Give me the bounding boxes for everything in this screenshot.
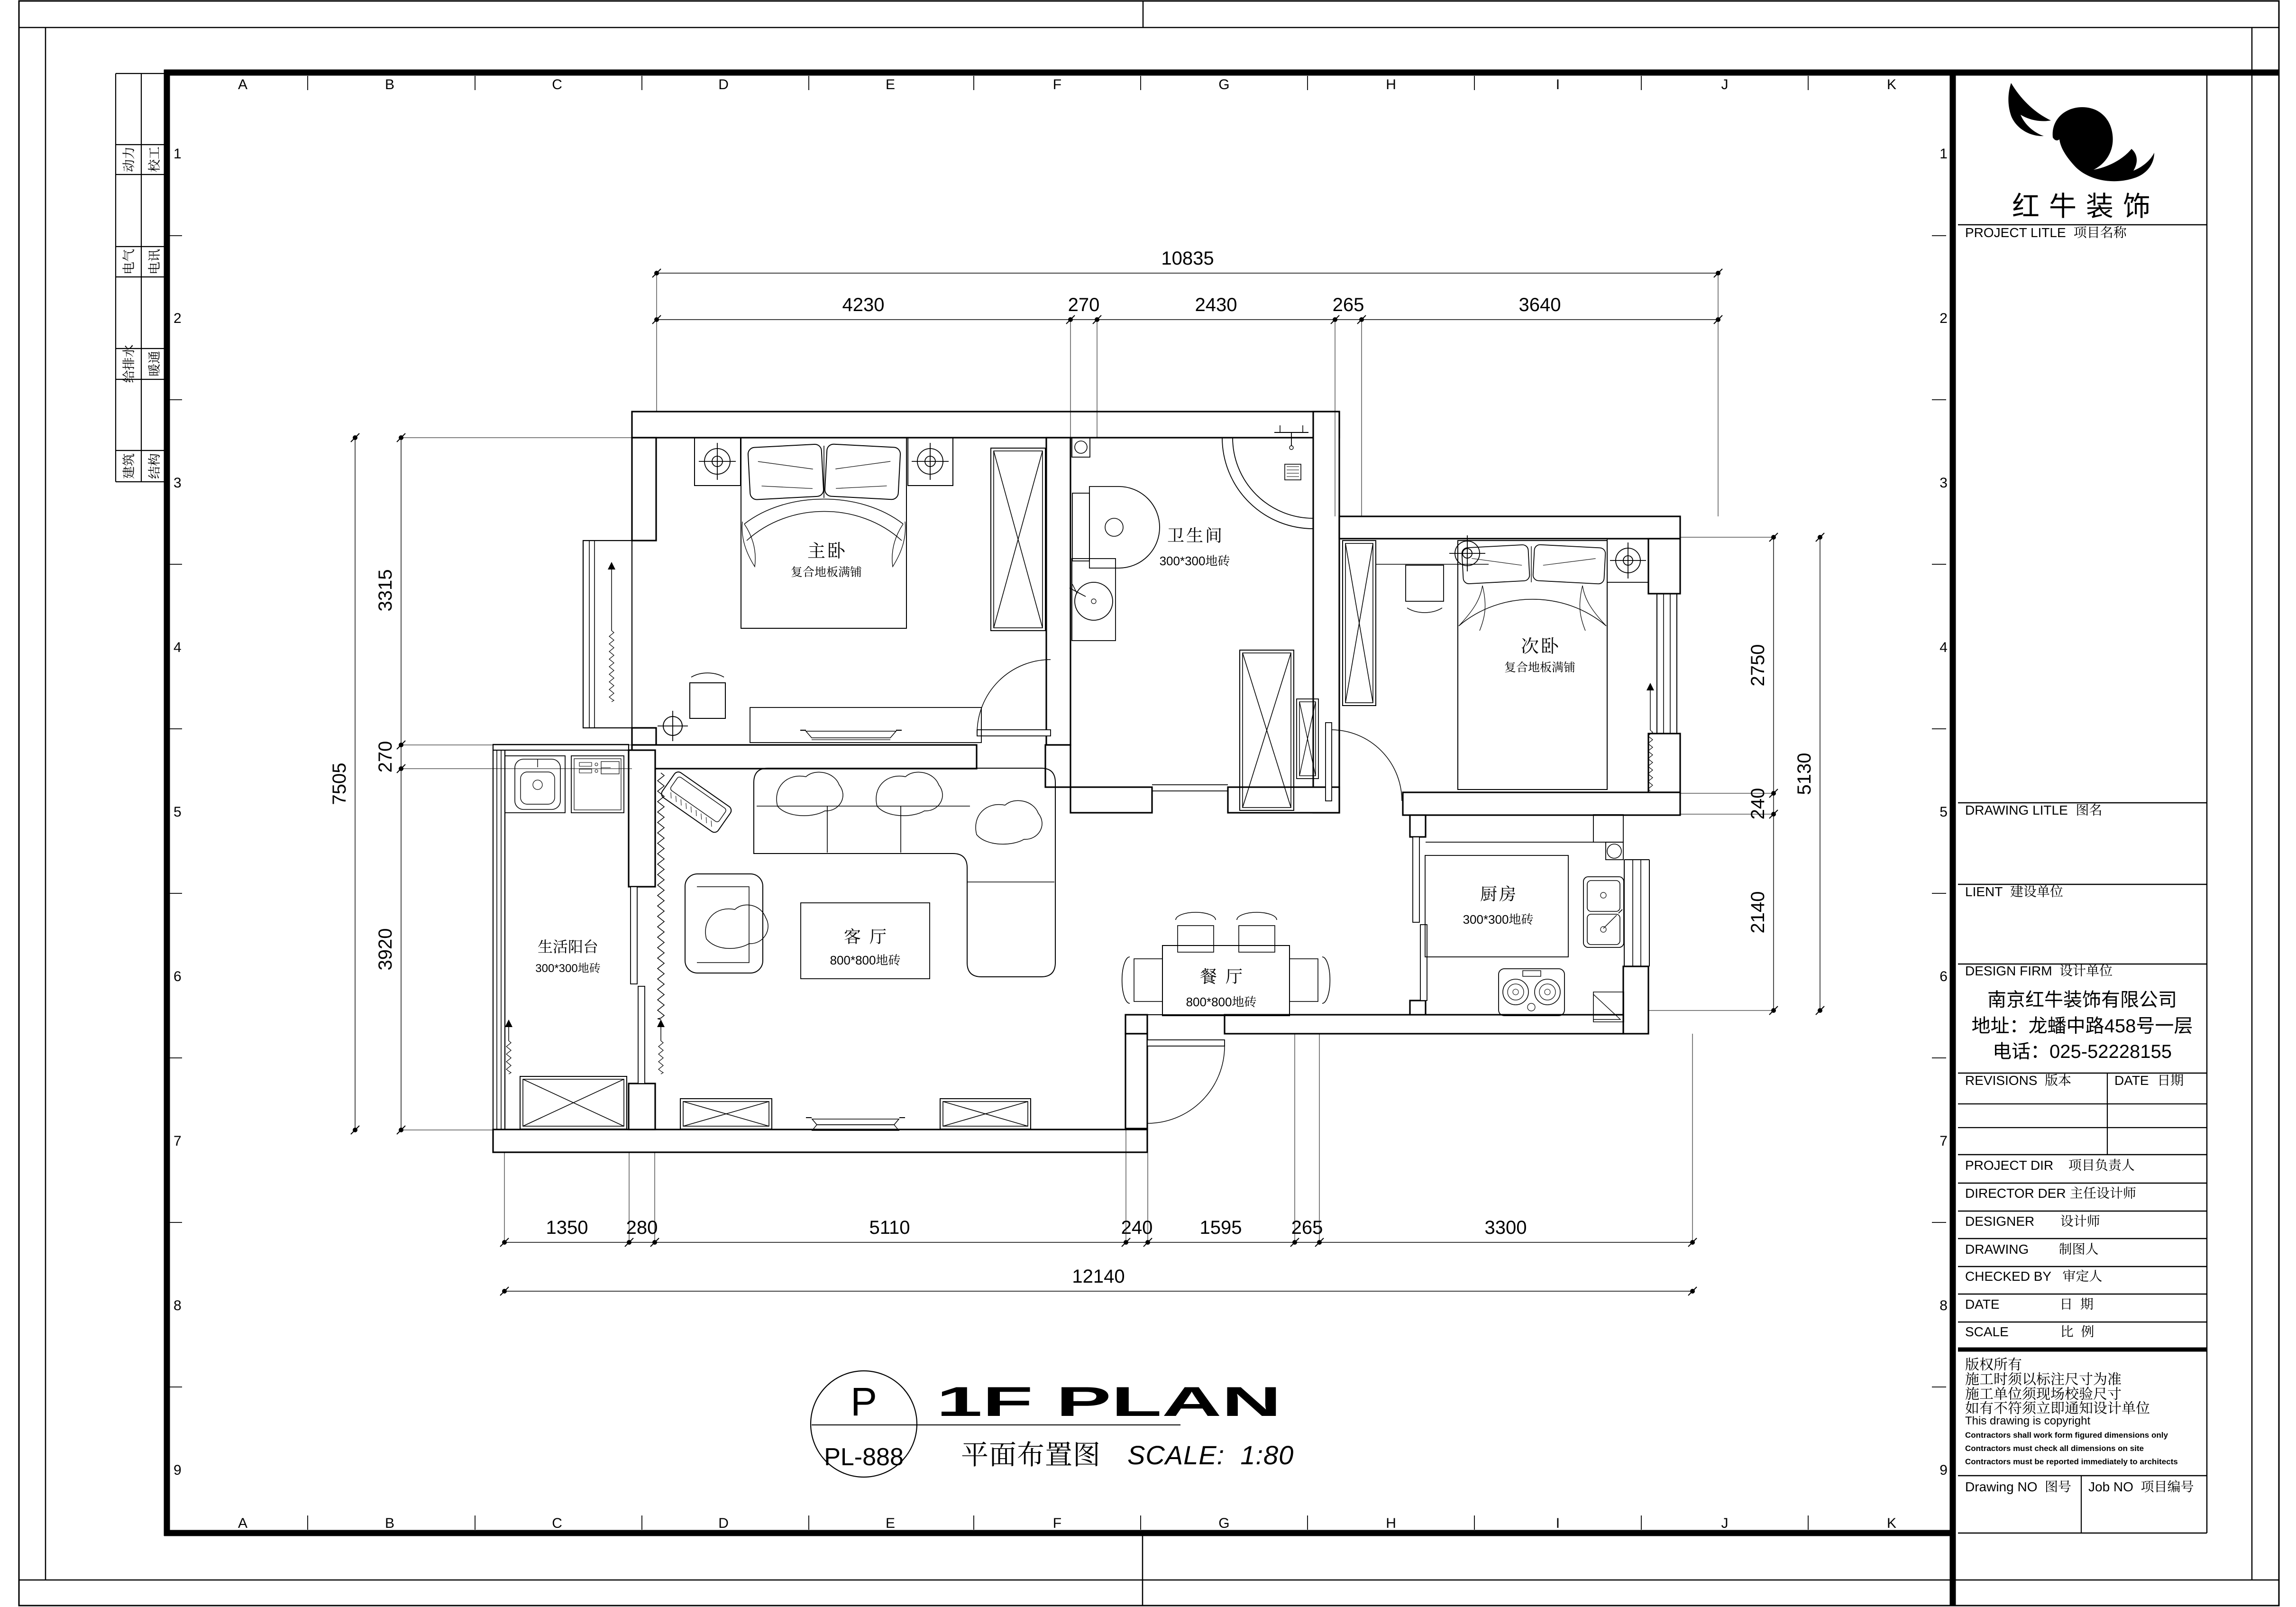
svg-text:2750: 2750 [1747,644,1768,687]
svg-text:B: B [385,1515,394,1531]
svg-text:I: I [1556,77,1560,92]
svg-text:Contractors must check all dim: Contractors must check all dimensions on… [1965,1444,2144,1453]
svg-text:1595: 1595 [1200,1217,1242,1238]
svg-text:3920: 3920 [375,928,396,971]
svg-text:DESIGNER: DESIGNER [1965,1214,2060,1229]
svg-text:800*800: 800*800 [1186,995,1232,1009]
svg-text:3: 3 [1939,475,1948,491]
svg-text:H: H [1386,77,1396,92]
svg-text:5110: 5110 [869,1217,910,1238]
svg-text:J: J [1721,1515,1729,1531]
svg-text:7505: 7505 [329,763,350,805]
svg-text:2140: 2140 [1747,891,1768,934]
svg-text:3300: 3300 [1485,1217,1527,1238]
svg-text:F: F [1053,1515,1061,1531]
svg-text:280: 280 [626,1217,658,1238]
svg-text:PROJECT LITLE: PROJECT LITLE [1965,225,2073,240]
svg-text:K: K [1887,1515,1896,1531]
svg-text:PROJECT DIR: PROJECT DIR [1965,1158,2068,1173]
svg-text:D: D [718,77,729,92]
svg-text:2430: 2430 [1195,294,1237,315]
svg-text:SCALE: SCALE [1965,1324,2060,1339]
svg-text:300*300: 300*300 [535,962,577,975]
svg-text:F: F [1053,77,1061,92]
svg-text:E: E [886,77,895,92]
svg-text:9: 9 [174,1462,182,1478]
svg-text:025-52228155: 025-52228155 [2049,1041,2172,1062]
svg-text:A: A [238,77,247,92]
svg-text:5: 5 [174,804,182,820]
svg-text:K: K [1887,77,1896,92]
svg-text:H: H [1386,1515,1396,1531]
svg-text:B: B [385,77,394,92]
svg-text:Contractors shall work form fi: Contractors shall work form figured dime… [1965,1431,2168,1440]
svg-text:3: 3 [174,475,182,491]
svg-text:265: 265 [1333,294,1364,315]
svg-text:1F PLAN: 1F PLAN [936,1378,1281,1425]
svg-text:265: 265 [1291,1217,1323,1238]
svg-text:3315: 3315 [375,569,396,612]
svg-text:REVISIONS: REVISIONS [1965,1073,2045,1088]
svg-text:J: J [1721,77,1729,92]
svg-text:G: G [1218,77,1229,92]
svg-text:DIRECTOR DER: DIRECTOR DER [1965,1186,2069,1201]
svg-text:6: 6 [174,969,182,984]
svg-text:LIENT: LIENT [1965,884,2010,899]
svg-text:2: 2 [174,311,182,326]
svg-text:1: 1 [1939,146,1948,162]
svg-text:4: 4 [1939,640,1948,655]
svg-text:300*300: 300*300 [1463,912,1509,927]
svg-text:4: 4 [174,640,182,655]
svg-text:240: 240 [1747,788,1768,820]
svg-text:10835: 10835 [1161,248,1214,269]
svg-text:7: 7 [174,1133,182,1149]
svg-text:7: 7 [1939,1133,1948,1149]
svg-text:DRAWING: DRAWING [1965,1242,2058,1257]
svg-text:8: 8 [1939,1298,1948,1313]
svg-text:G: G [1218,1515,1229,1531]
svg-text:E: E [886,1515,895,1531]
svg-text:Drawing NO: Drawing NO [1965,1479,2045,1494]
svg-text:1: 1 [174,146,182,162]
svg-text:9: 9 [1939,1462,1948,1478]
svg-text:P: P [851,1379,877,1424]
svg-text:5130: 5130 [1794,753,1815,795]
svg-text:D: D [718,1515,729,1531]
svg-text:800*800: 800*800 [830,953,876,967]
svg-text:SCALE: 1:80: SCALE: 1:80 [1127,1440,1294,1470]
svg-text:8: 8 [174,1298,182,1313]
svg-text:240: 240 [1121,1217,1153,1238]
svg-text:C: C [552,77,562,92]
svg-text:Contractors must be reported i: Contractors must be reported immediately… [1965,1457,2178,1466]
svg-text:2: 2 [1939,311,1948,326]
svg-text:This drawing is copyright: This drawing is copyright [1965,1414,2090,1427]
svg-text:I: I [1556,1515,1560,1531]
svg-text:DATE: DATE [2114,1073,2156,1088]
svg-text:270: 270 [375,741,396,773]
svg-text:DATE: DATE [1965,1297,2058,1312]
svg-text:PL-888: PL-888 [824,1443,904,1471]
svg-text:DESIGN FIRM: DESIGN FIRM [1965,964,2059,978]
svg-text:A: A [238,1515,247,1531]
svg-text:4230: 4230 [842,294,885,315]
svg-text:300*300: 300*300 [1160,554,1206,568]
svg-text:C: C [552,1515,562,1531]
svg-text:3640: 3640 [1519,294,1561,315]
svg-text:6: 6 [1939,969,1948,984]
svg-text:1350: 1350 [546,1217,588,1238]
svg-text:Job NO: Job NO [2088,1479,2140,1494]
svg-text:458: 458 [2104,1016,2136,1037]
svg-text:5: 5 [1939,804,1948,820]
svg-text:CHECKED BY: CHECKED BY [1965,1269,2062,1284]
svg-text:DRAWING LITLE: DRAWING LITLE [1965,803,2075,817]
svg-text:270: 270 [1068,294,1100,315]
svg-text:12140: 12140 [1072,1266,1125,1287]
